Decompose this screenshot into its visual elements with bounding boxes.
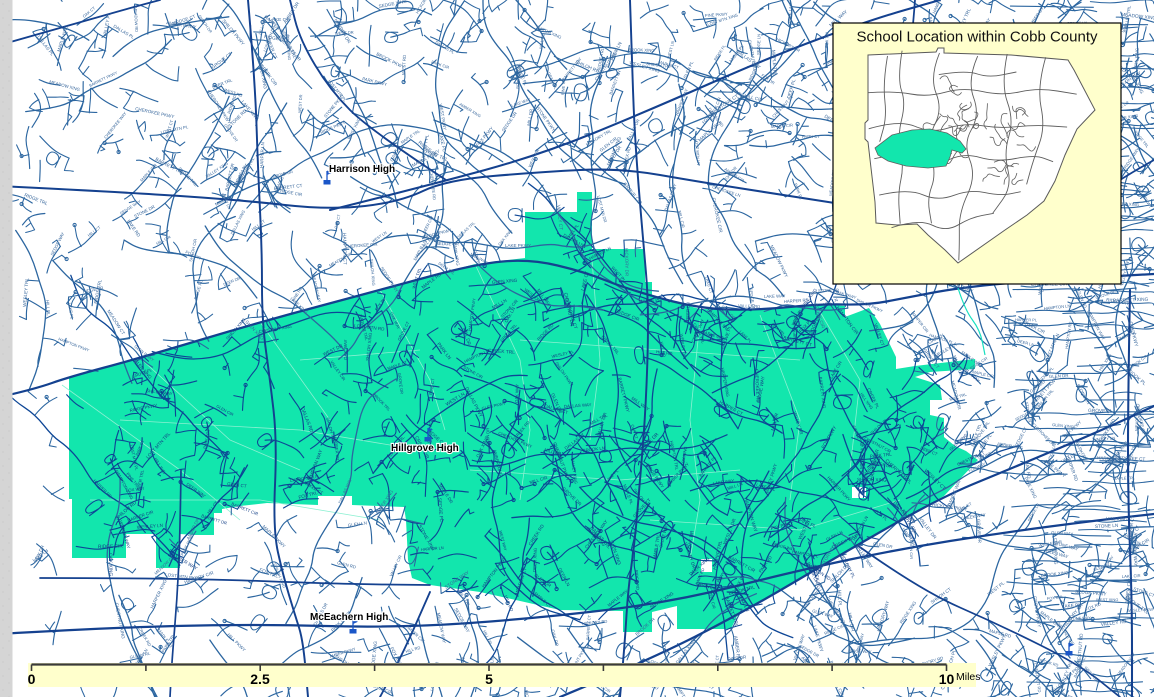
svg-text:Hillgrove High: Hillgrove High <box>391 443 459 454</box>
svg-text:0: 0 <box>28 671 36 687</box>
svg-text:HARPER PL: HARPER PL <box>1015 317 1038 322</box>
svg-text:GROVE PL: GROVE PL <box>1088 408 1113 414</box>
svg-text:HILL PL: HILL PL <box>837 590 843 607</box>
svg-text:SHILOH XING: SHILOH XING <box>857 477 887 483</box>
svg-text:10: 10 <box>939 671 955 687</box>
svg-text:OAK WAY: OAK WAY <box>343 339 348 360</box>
svg-text:Miles: Miles <box>956 671 981 683</box>
svg-text:RIDGE CIR: RIDGE CIR <box>98 544 123 550</box>
svg-text:McEachern High: McEachern High <box>310 612 388 623</box>
svg-text:HILL XING: HILL XING <box>1106 516 1128 522</box>
svg-text:SEDGE DR: SEDGE DR <box>436 241 459 246</box>
svg-text:OAK WAY: OAK WAY <box>514 384 520 403</box>
svg-text:LOST MTN CIR: LOST MTN CIR <box>909 531 914 559</box>
svg-text:SEDGE LN: SEDGE LN <box>756 34 761 55</box>
svg-text:STONE WAY: STONE WAY <box>1068 615 1091 621</box>
svg-text:5: 5 <box>485 671 493 687</box>
svg-text:HICKORY DR: HICKORY DR <box>624 248 630 277</box>
svg-text:DEER LN: DEER LN <box>685 302 691 321</box>
svg-text:HAMPTON CT: HAMPTON CT <box>341 233 348 265</box>
svg-text:DEER XING: DEER XING <box>532 547 538 572</box>
svg-text:2.5: 2.5 <box>250 671 270 687</box>
svg-text:MAPLE TRL: MAPLE TRL <box>1113 475 1136 481</box>
svg-text:FOX TRL: FOX TRL <box>824 30 830 48</box>
svg-text:PARK CT: PARK CT <box>802 134 820 139</box>
svg-text:School Location within Cobb Co: School Location within Cobb County <box>857 29 1098 46</box>
svg-text:Harrison High: Harrison High <box>329 164 395 175</box>
svg-text:LAKE PKWY: LAKE PKWY <box>505 243 531 248</box>
svg-text:LAKE CIR: LAKE CIR <box>1122 573 1141 579</box>
svg-text:OAK XING: OAK XING <box>107 553 113 577</box>
svg-text:LAKE WAY: LAKE WAY <box>764 293 786 299</box>
svg-text:BROOK XING: BROOK XING <box>628 47 655 53</box>
svg-text:STONE DR: STONE DR <box>818 288 839 293</box>
